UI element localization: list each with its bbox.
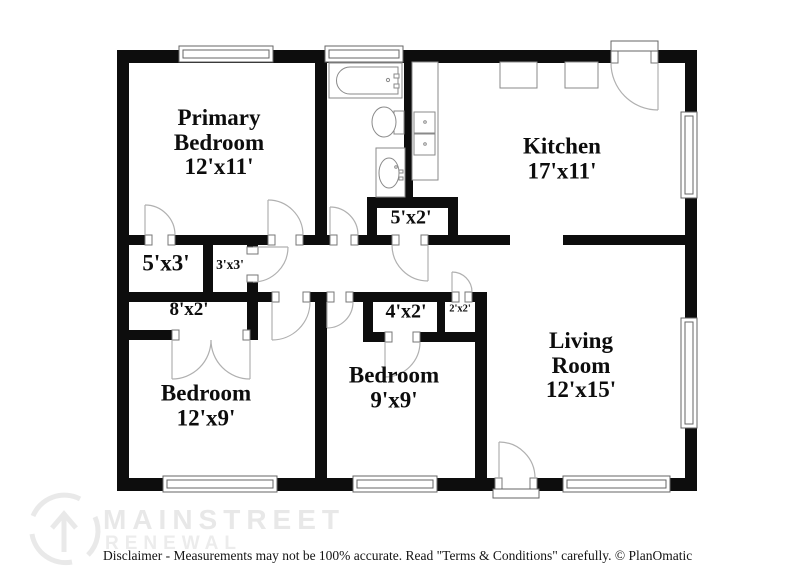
room-label-living-room: Living Room 12'x15' xyxy=(546,329,616,403)
room-name-line: Primary xyxy=(174,106,264,131)
room-label-bedroom-12x9: Bedroom 12'x9' xyxy=(161,381,251,430)
closet-label-8x2: 8'x2' xyxy=(169,300,208,320)
floorplan-page: Primary Bedroom 12'x11' Kitchen 17'x11' … xyxy=(0,0,809,588)
closet-dims: 5'x2' xyxy=(390,207,431,228)
door-closet-2x2 xyxy=(452,272,472,292)
toilet-icon xyxy=(372,107,404,137)
double-door-closet-8x2 xyxy=(172,340,250,379)
closet-label-4x2: 4'x2' xyxy=(385,301,426,322)
mainstreet-logo-icon xyxy=(32,495,98,562)
room-name-line: Living xyxy=(546,329,616,354)
closet-label-2x2: 2'x2' xyxy=(449,303,471,314)
door-bedroom-9x9-hall xyxy=(327,302,353,328)
window-kitchen-right xyxy=(681,112,697,198)
closet-dims: 2'x2' xyxy=(449,303,471,314)
door-closet-5x3 xyxy=(145,205,175,235)
door-threshold-living xyxy=(493,489,539,498)
window-primary-bedroom xyxy=(179,46,273,62)
room-dims: 12'x15' xyxy=(546,378,616,403)
room-name-line: Room xyxy=(546,354,616,379)
door-threshold-kitchen xyxy=(611,41,658,51)
closet-label-3x3: 3'x3' xyxy=(216,258,244,272)
door-living-entry xyxy=(499,442,535,478)
room-dims: 9'x9' xyxy=(349,388,439,413)
floorplan-drawing xyxy=(0,0,809,588)
door-bedroom-12x9-hall xyxy=(272,302,310,340)
vanity-sink-icon xyxy=(376,148,405,197)
room-name-line: Bedroom xyxy=(174,131,264,156)
kitchen-appliance-icons xyxy=(500,62,598,88)
closet-label-5x3: 5'x3' xyxy=(142,252,189,277)
window-bedroom-12x9 xyxy=(163,476,277,492)
door-bathroom xyxy=(330,207,358,235)
disclaimer-text: Disclaimer - Measurements may not be 100… xyxy=(103,548,692,564)
room-dims: 12'x11' xyxy=(174,155,264,180)
door-closet-5x2 xyxy=(392,245,428,281)
bathtub-icon xyxy=(329,63,402,98)
room-label-bedroom-9x9: Bedroom 9'x9' xyxy=(349,363,439,412)
window-living-room-right xyxy=(681,318,697,428)
kitchen-double-sink-icon xyxy=(414,112,435,155)
window-bedroom-9x9 xyxy=(353,476,437,492)
window-bathroom xyxy=(325,46,403,62)
closet-dims: 3'x3' xyxy=(216,258,244,272)
closet-dims: 5'x3' xyxy=(142,252,189,277)
closet-dims: 8'x2' xyxy=(169,300,208,320)
room-dims: 17'x11' xyxy=(523,159,601,184)
room-name-line: Kitchen xyxy=(523,134,601,159)
room-label-primary-bedroom: Primary Bedroom 12'x11' xyxy=(174,106,264,180)
door-primary-bedroom xyxy=(268,200,303,235)
window-living-room-bottom xyxy=(563,476,670,492)
door-kitchen-entry xyxy=(611,63,658,110)
watermark-brand-mainstreet: MAINSTREET xyxy=(103,504,345,536)
room-name-line: Bedroom xyxy=(349,363,439,388)
room-name-line: Bedroom xyxy=(161,381,251,406)
closet-dims: 4'x2' xyxy=(385,301,426,322)
room-label-kitchen: Kitchen 17'x11' xyxy=(523,134,601,183)
closet-label-5x2: 5'x2' xyxy=(390,207,431,228)
room-dims: 12'x9' xyxy=(161,406,251,431)
